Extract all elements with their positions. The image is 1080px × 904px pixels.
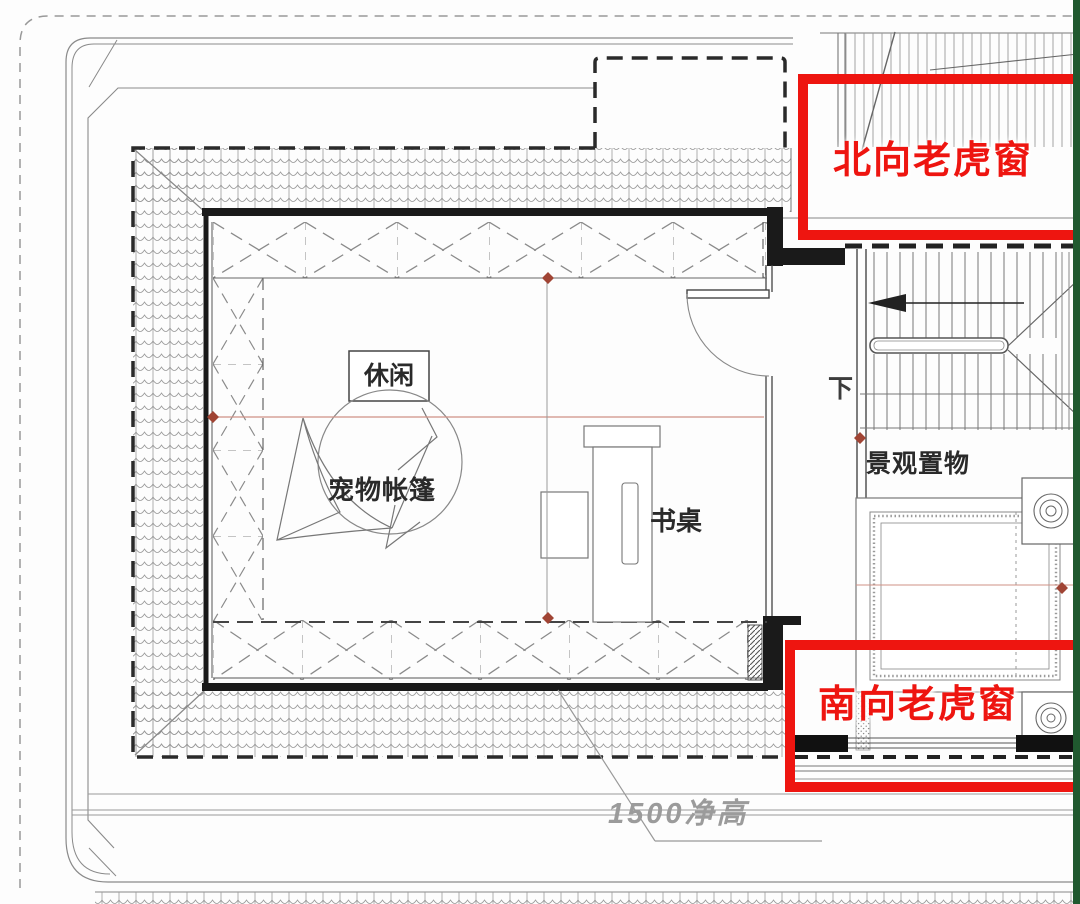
attic-room-walls	[202, 207, 845, 690]
ceiling-fixture-box-top	[1022, 478, 1080, 544]
desk-chair	[584, 426, 660, 447]
north-dormer-annotation: 北向老虎窗	[833, 142, 1033, 180]
stair-down-label: 下	[828, 377, 853, 402]
leisure-label: 休闲	[349, 351, 429, 401]
door-swing-arc	[687, 294, 769, 376]
right-edge-strip	[1073, 0, 1080, 904]
north-dormer-outline	[595, 58, 785, 148]
door-leaf	[687, 290, 769, 298]
south-dormer-wall	[788, 735, 1080, 779]
clear-height-label: 1500净高	[608, 800, 749, 829]
south-dormer-annotation: 南向老虎窗	[818, 686, 1018, 724]
north-deck	[783, 32, 1080, 246]
floor-plan-page: 休闲 宠物帐篷 书桌 景观置物 下 1500净高 北向老虎窗 南向老虎窗	[0, 0, 1080, 904]
desk-label: 书桌	[650, 508, 702, 534]
landscape-shelf-label: 景观置物	[866, 452, 970, 477]
stair-treads-lower	[874, 354, 1056, 430]
room-door	[687, 290, 769, 376]
bottom-tile-strip	[95, 892, 1080, 904]
stair-treads-upper	[874, 252, 1056, 338]
stair-handrail	[870, 338, 1008, 353]
stool	[541, 492, 588, 558]
pet-tent-label: 宠物帐篷	[328, 477, 436, 503]
